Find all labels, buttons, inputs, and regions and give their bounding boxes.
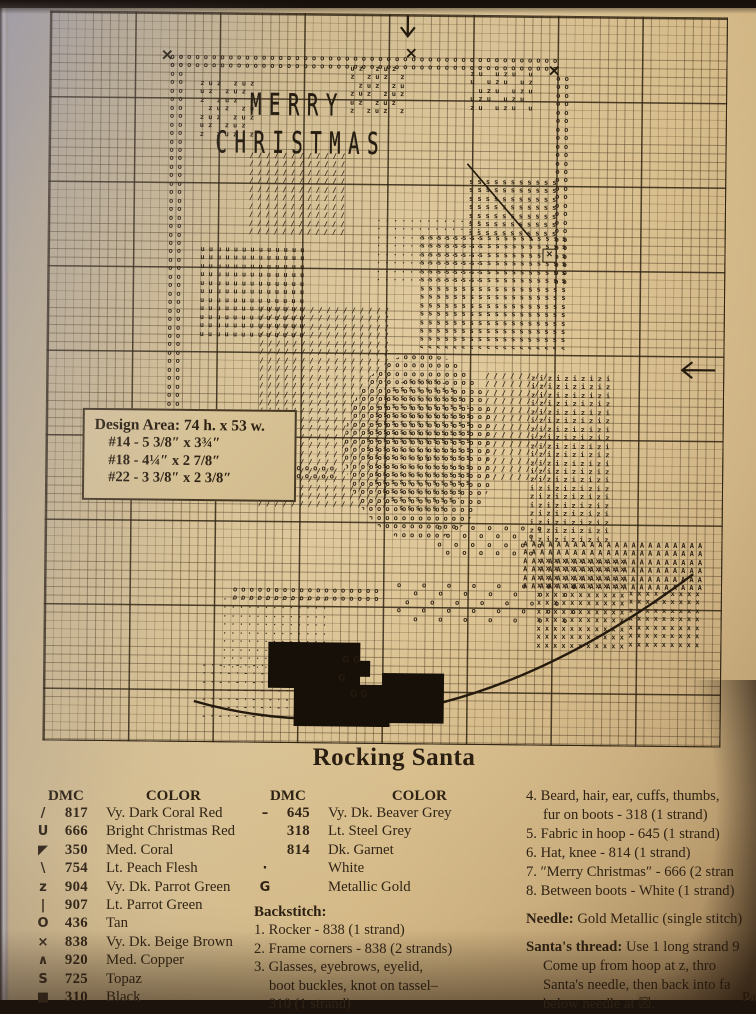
instruction-column: 4. Beard, hair, ear, cuffs, thumbs,fur o… xyxy=(526,787,756,1014)
dmc-number: 817 xyxy=(54,805,88,822)
santas-thread-line: Santa's needle, then back into fa xyxy=(543,976,756,995)
backstitch-heading: Backstitch: xyxy=(254,904,516,921)
stitch-symbol: ◤ xyxy=(32,843,54,858)
color-name: Med. Copper xyxy=(88,952,184,969)
key-row: ■310Black xyxy=(32,989,264,1007)
color-key-column-1: DMC COLOR /817Vy. Dark Coral RedU666Brig… xyxy=(32,788,264,1007)
design-size-18: #18 - 4¼″ x 2 7/8″ xyxy=(94,451,286,471)
chart-marks: ××××G GGG G xyxy=(51,11,727,18)
region-boot-right: xxxxxxxxx xxxxxxxxx xxxxxxxxx xxxxxxxxx … xyxy=(628,590,707,653)
list-item-line: 2. Frame corners - 838 (2 strands) xyxy=(254,940,516,959)
stitch-symbol: | xyxy=(32,898,54,913)
stitch-symbol: \ xyxy=(32,861,54,876)
stitch-symbol: S xyxy=(32,972,54,987)
santas-thread-lines: Come up from hoop at z, throSanta's need… xyxy=(526,957,756,1014)
list-item-line: 5. Fabric in hoop - 645 (1 strand) xyxy=(526,825,756,844)
color-name: Vy. Dk. Beaver Grey xyxy=(310,805,452,822)
region-holly-mid: uz zuz z zuz z zuz zu zuz zuz uz zuz z z… xyxy=(350,65,411,118)
list-item-line: 6. Hat, knee - 814 (1 strand) xyxy=(526,844,756,863)
design-size-22: #22 - 3 3/8″ x 2 3/8″ xyxy=(94,469,286,489)
region-santa-hat: //////////// //////////// //////////// /… xyxy=(249,152,350,241)
region-striped-stockings: zizizizizi iziziziziz zizizizizi izizizi… xyxy=(529,375,619,544)
gold-stitch-mark: G G xyxy=(342,657,360,666)
dmc-number: 754 xyxy=(54,860,88,877)
color-name: Metallic Gold xyxy=(310,879,411,896)
region-hand-hoop-dashes: --------- --------- --------- --------- … xyxy=(384,405,465,462)
center-arrow-down-icon xyxy=(401,15,415,36)
color-name: Tan xyxy=(88,915,128,932)
key-row: /817Vy. Dark Coral Red xyxy=(32,805,264,823)
dmc-header-2: DMC xyxy=(254,788,306,805)
color-name: Vy. Dk. Beige Brown xyxy=(88,934,233,951)
photo-of-pattern-book-page: { "page": { "title": "Rocking Santa", "d… xyxy=(0,0,756,1000)
stitch-symbol: – xyxy=(254,806,276,821)
color-name: Lt. Parrot Green xyxy=(88,897,203,914)
needle-note: Needle: Gold Metallic (single stitch) xyxy=(526,910,756,929)
color-name: Black xyxy=(88,989,141,1006)
santas-thread-first: Use 1 long strand 9 xyxy=(622,939,739,955)
color-header-2: COLOR xyxy=(306,788,447,805)
key-rows-1: /817Vy. Dark Coral RedU666Bright Christm… xyxy=(32,805,264,1007)
key-row: 318Lt. Steel Grey xyxy=(254,823,516,841)
list-item-line: fur on boots - 318 (1 strand) xyxy=(526,806,756,825)
list-item-line: 4. Beard, hair, ear, cuffs, thumbs, xyxy=(526,787,756,806)
color-key-column-2: DMC COLOR –645Vy. Dk. Beaver Grey318Lt. … xyxy=(254,788,516,1014)
key-row: 814Dk. Garnet xyxy=(254,842,516,860)
key-row: ·White xyxy=(254,860,516,878)
page-title: Rocking Santa xyxy=(154,744,634,772)
region-santa-arm-raised: sssssssssss sssssssssss sssssssssss ssss… xyxy=(469,178,560,239)
color-name: Topaz xyxy=(88,971,142,988)
black-block xyxy=(294,684,390,727)
dmc-number: 645 xyxy=(276,805,310,822)
color-header-1: COLOR xyxy=(84,788,201,805)
color-name: Lt. Peach Flesh xyxy=(88,860,198,877)
dmc-number: 814 xyxy=(276,842,310,859)
color-name: Lt. Steel Grey xyxy=(310,823,411,840)
santas-thread-line: Come up from hoop at z, thro xyxy=(543,957,756,976)
list-item-line: boot buckles, knot on tassel– xyxy=(254,977,516,996)
key-row: ∧920Med. Copper xyxy=(32,952,264,970)
needle-text: Gold Metallic (single stitch) xyxy=(574,911,743,927)
region-o-strip: oooooooooooooooooo oooooooooooooooooo xyxy=(233,585,383,607)
stitch-symbol: / xyxy=(32,806,54,821)
design-area-box: Design Area: 74 h. x 53 w. #14 - 5 3/8″ … xyxy=(82,408,297,502)
dmc-number: 907 xyxy=(54,897,88,914)
list-item-line: 3. Glasses, eyebrows, eyelid, xyxy=(254,958,516,977)
key-row: \754Lt. Peach Flesh xyxy=(32,860,264,878)
black-block xyxy=(382,673,445,724)
design-area-heading: Design Area: xyxy=(95,416,181,434)
key-row: |907Lt. Parrot Green xyxy=(32,897,264,915)
key-row: –645Vy. Dk. Beaver Grey xyxy=(254,805,516,823)
frame-corner-x-mark: × xyxy=(160,47,174,63)
gold-stitch-mark: G xyxy=(338,675,345,684)
dmc-number: 666 xyxy=(54,823,88,840)
design-size-14: #14 - 5 3/8″ x 3¾″ xyxy=(94,434,286,454)
color-name: Vy. Dk. Parrot Green xyxy=(88,879,230,896)
dmc-number: 838 xyxy=(54,934,88,951)
design-area-dims: 74 h. x 53 w. xyxy=(184,417,265,435)
key-row: S725Topaz xyxy=(32,971,264,989)
key-row: GMetallic Gold xyxy=(254,879,516,897)
boxed-x-thread-marker: × xyxy=(542,249,556,263)
needle-label: Needle: xyxy=(526,911,574,927)
stitch-symbol: ■ xyxy=(32,990,54,1005)
color-name: Dk. Garnet xyxy=(310,842,394,859)
stitch-symbol: z xyxy=(32,880,54,895)
list-item-line: 310 (1 strand) xyxy=(254,995,516,1014)
santas-thread-note: Santa's thread: Use 1 long strand 9 Come… xyxy=(526,938,756,1014)
region-o-scatter: o o o o o o o o o o o o o o o o o o o o … xyxy=(397,581,582,629)
list-item-line: 7. ″Merry Christmas″ - 666 (2 stran xyxy=(526,863,756,882)
cut-off-text-fragment: Pa xyxy=(742,990,756,1006)
key-row: ◤350Med. Coral xyxy=(32,842,264,860)
dmc-number: 318 xyxy=(276,823,310,840)
gold-stitch-mark: G G xyxy=(350,691,368,700)
region-chair-spindles: o o o o o o o o o o o o o o o o o o o o … xyxy=(437,524,549,559)
key-row: z904Vy. Dk. Parrot Green xyxy=(32,879,264,897)
stitch-symbol-regions: oooooooooooooooooooooooooooooooooooooooo… xyxy=(51,11,727,18)
dmc-number: 920 xyxy=(54,952,88,969)
key-row: U666Bright Christmas Red xyxy=(32,823,264,841)
key-row: O436Tan xyxy=(32,915,264,933)
stitched-word-christmas: CHRISTMAS xyxy=(215,125,386,162)
instruction-items: 4. Beard, hair, ear, cuffs, thumbs,fur o… xyxy=(526,787,756,901)
center-arrow-left-icon xyxy=(682,362,715,378)
book-page: oooooooooooooooooooooooooooooooooooooooo… xyxy=(4,8,756,1000)
stitch-symbol: U xyxy=(32,824,54,839)
color-name: Bright Christmas Red xyxy=(88,823,235,840)
dmc-header-1: DMC xyxy=(32,788,84,805)
stitch-symbol: × xyxy=(32,935,54,950)
list-item-line: 8. Between boots - White (1 strand) xyxy=(526,882,756,901)
dmc-number: 436 xyxy=(54,915,88,932)
stitch-symbol: G xyxy=(254,880,276,895)
frame-corner-x-mark: × xyxy=(405,45,419,61)
black-stitch-blocks xyxy=(51,11,727,18)
list-item-line: 1. Rocker - 838 (1 strand) xyxy=(254,921,516,940)
dmc-number: 310 xyxy=(54,989,88,1006)
stitch-symbol: O xyxy=(32,916,54,931)
color-name: Med. Coral xyxy=(88,842,173,859)
color-name: White xyxy=(310,860,364,877)
dmc-number: 725 xyxy=(54,971,88,988)
dmc-number: 904 xyxy=(54,879,88,896)
santas-thread-label: Santa's thread: xyxy=(526,939,622,955)
key-rows-2: –645Vy. Dk. Beaver Grey318Lt. Steel Grey… xyxy=(254,805,516,897)
key-row: ×838Vy. Dk. Beige Brown xyxy=(32,934,264,952)
stitch-symbol: ∧ xyxy=(32,953,54,968)
region-holly-right: zu uzu u u uzu uz uzu uzu uzu uzu zu uzu… xyxy=(470,70,534,111)
frame-corner-x-mark: × xyxy=(547,63,561,79)
cross-stitch-chart-grid: oooooooooooooooooooooooooooooooooooooooo… xyxy=(42,10,728,747)
color-name: Vy. Dark Coral Red xyxy=(88,805,223,822)
book-page-edge xyxy=(0,8,9,1000)
stitch-symbol: · xyxy=(254,861,276,876)
stitched-word-merry: MERRY xyxy=(250,88,345,124)
santas-thread-line: below needle at ☒. xyxy=(543,995,756,1014)
dmc-number: 350 xyxy=(54,842,88,859)
